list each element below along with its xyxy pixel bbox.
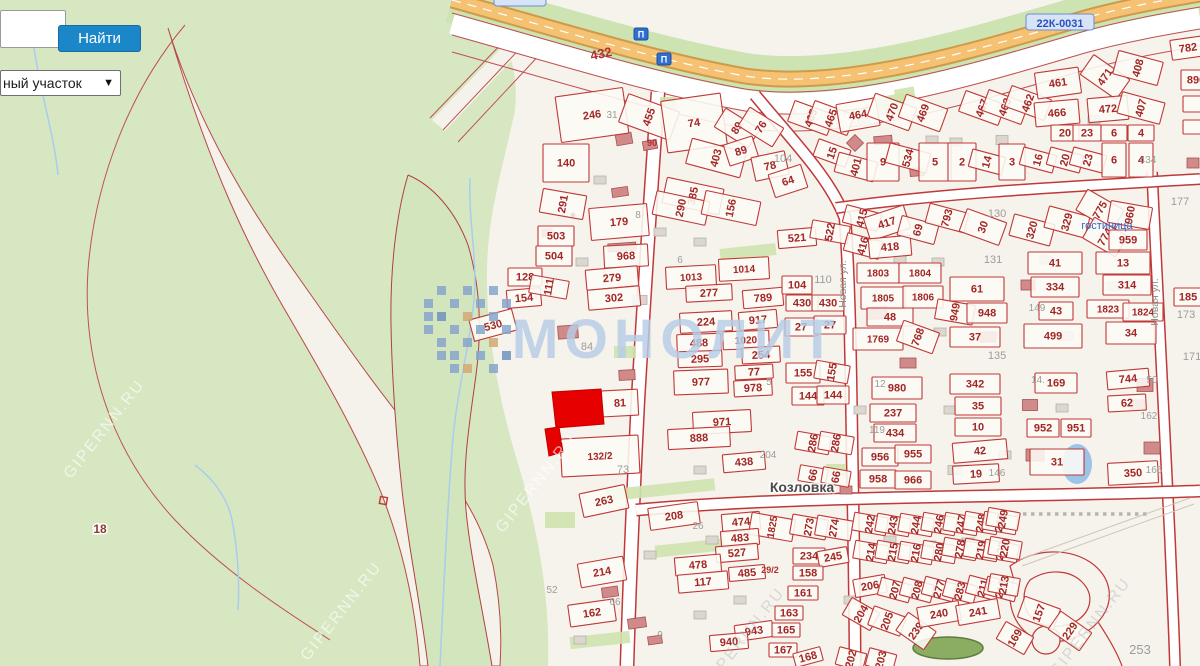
watermark-logo-square (489, 338, 498, 347)
map-label: 149 (1029, 303, 1046, 314)
parcel-number: 334 (1046, 282, 1065, 294)
parcel-number: 31 (1051, 457, 1063, 469)
find-button[interactable]: Найти (58, 25, 141, 52)
map-label: 8 (635, 210, 641, 221)
parcel-number: 782 (1178, 41, 1198, 55)
selected-parcel-shape[interactable] (552, 389, 604, 428)
street-name-label: Новая ул. (1149, 278, 1161, 325)
parcel[interactable]: 1803 (857, 263, 899, 283)
outbuilding (654, 228, 666, 236)
watermark-logo-square (450, 351, 459, 360)
parcel-number: 959 (1119, 235, 1137, 247)
parcel-number: 890 (1187, 75, 1200, 87)
parcel-number: 478 (688, 559, 707, 573)
parcel[interactable]: 958 (860, 470, 896, 488)
parcel[interactable]: 418 (868, 235, 912, 259)
parcel-number: 10 (972, 422, 984, 434)
parcel-number: 302 (604, 292, 623, 306)
parcel[interactable]: 956 (862, 448, 898, 466)
watermark-logo-square (450, 364, 459, 373)
parcel-number: 62 (1121, 397, 1134, 410)
parcel-number: 1013 (680, 272, 703, 284)
parcel[interactable]: 744 (1106, 368, 1149, 390)
parcel[interactable]: 1014 (718, 257, 769, 282)
parcel[interactable] (1183, 120, 1200, 134)
parcel[interactable]: 104 (782, 276, 812, 294)
parcel-number: 483 (730, 532, 749, 546)
parcel[interactable]: 948 (967, 303, 1007, 323)
map-label: 18 (93, 522, 107, 536)
parcel-number: 279 (602, 272, 621, 286)
parcel[interactable]: 527 (715, 543, 758, 563)
watermark-logo-square (437, 286, 446, 295)
map-label: 204 (760, 450, 777, 461)
parcel-number: 167 (774, 645, 792, 657)
road-label-clipped (494, 0, 546, 6)
parcel[interactable]: 504 (536, 246, 572, 266)
watermark-logo-square (476, 299, 485, 308)
svg-text:П: П (638, 30, 644, 40)
parcel-number: 154 (514, 292, 534, 306)
parcel-number: 43 (1050, 306, 1062, 318)
parcel-number: 956 (871, 452, 889, 464)
parcel-number: 4 (1138, 128, 1145, 140)
parcel-number: 1806 (912, 293, 935, 304)
watermark-logo-square (450, 325, 459, 334)
parcel[interactable]: 461 (1034, 67, 1081, 99)
parcel[interactable]: 499 (1024, 324, 1082, 348)
parcel-number: 3 (1009, 157, 1015, 169)
parcel[interactable]: 955 (895, 445, 931, 463)
outbuilding (734, 596, 746, 604)
parcel[interactable]: 35 (955, 397, 1001, 415)
parcel-number: 527 (727, 547, 746, 561)
parcel-number: 19 (970, 468, 983, 481)
parcel[interactable]: 1769 (853, 328, 903, 350)
parcel-number: 521 (787, 232, 806, 246)
map-label: 104 (774, 153, 792, 165)
parcel-number: 504 (545, 251, 564, 263)
watermark-logo-square (450, 299, 459, 308)
parcel[interactable]: 237 (870, 404, 916, 422)
outbuilding (1056, 404, 1068, 412)
parcel-number: 1014 (733, 264, 756, 276)
map-label: 50 (1146, 375, 1158, 386)
parcel[interactable]: 158 (793, 566, 823, 580)
parcel[interactable]: 968 (603, 244, 648, 268)
parcel[interactable]: 466 (1034, 99, 1080, 127)
map-label: 52 (546, 585, 558, 596)
parcel-number: 314 (1118, 280, 1137, 292)
map-label: 14. (1031, 375, 1045, 386)
map-label: 434 (1140, 155, 1157, 166)
watermark-logo-square (463, 286, 472, 295)
outbuilding (706, 536, 718, 544)
parcel-number: 466 (1047, 107, 1066, 121)
watermark-logo-square (463, 364, 472, 373)
parcel-number: 144 (799, 391, 818, 403)
parcel-number: 185 (1179, 292, 1197, 304)
watermark-logo-square (476, 325, 485, 334)
parcel-number: 13 (1117, 258, 1129, 270)
parcel-number: 246 (582, 108, 602, 122)
parcel-number: 966 (904, 475, 922, 487)
parcel[interactable]: 1805 (861, 287, 905, 309)
parcel[interactable]: 61 (950, 277, 1004, 301)
parcel-number: 485 (737, 567, 756, 581)
parcel-number: 980 (888, 383, 906, 395)
parcel-number: 61 (971, 284, 983, 296)
watermark-logo-square (424, 325, 433, 334)
parcel-number: 474 (731, 516, 751, 530)
parcel-number: 418 (880, 241, 899, 255)
outbuilding (854, 406, 866, 414)
parcel[interactable]: 31 (1030, 449, 1084, 475)
bus-stop-icon[interactable]: П (657, 53, 671, 65)
parcel[interactable]: 277 (686, 284, 733, 302)
watermark-logo-square (502, 325, 511, 334)
parcel-number: 277 (700, 287, 719, 300)
watermark-logo-square (424, 312, 433, 321)
map-label: 12 (874, 379, 886, 390)
parcel[interactable]: 959 (1109, 230, 1147, 250)
parcel[interactable]: 165 (772, 623, 800, 637)
parcel[interactable]: 37 (950, 327, 1000, 347)
parcel-number: 888 (690, 432, 709, 445)
parcel[interactable]: 6 (1102, 143, 1126, 177)
outbuilding (694, 238, 706, 246)
parcel-number: 2 (959, 157, 965, 169)
parcel-number: 41 (1049, 258, 1061, 270)
outbuilding (694, 611, 706, 619)
parcel[interactable]: 890 (1181, 70, 1200, 90)
parcel[interactable]: 23 (1073, 125, 1101, 141)
parcel[interactable]: 140 (543, 144, 589, 182)
map-label: 253 (1129, 642, 1151, 657)
outbuilding (694, 466, 706, 474)
parcel[interactable]: 1804 (899, 263, 941, 283)
parcel[interactable]: 13 (1096, 252, 1150, 274)
watermark-logo-square (502, 299, 511, 308)
parcel[interactable]: 951 (1061, 419, 1091, 437)
map-label: 146 (989, 468, 1006, 479)
watermark-text: МОНОЛИТ (512, 307, 841, 370)
parcel[interactable]: 782 (1170, 36, 1200, 61)
outbuilding (576, 258, 588, 266)
outbuilding (996, 136, 1008, 145)
building (611, 186, 628, 197)
svg-text:22К-0031: 22К-0031 (1036, 18, 1083, 30)
map-label: 119 (869, 425, 885, 436)
building (627, 617, 646, 629)
parcel-number: 6 (1111, 128, 1117, 140)
parcel-number: 104 (788, 280, 807, 292)
parcel[interactable]: 485 (728, 564, 765, 581)
parcel-number: 208 (664, 509, 684, 523)
parcel-number: 161 (794, 588, 812, 600)
parcel[interactable]: 10 (955, 418, 1001, 436)
chevron-down-icon: ▼ (103, 77, 114, 89)
parcel[interactable]: 42 (952, 439, 1008, 464)
parcel[interactable]: 966 (895, 471, 931, 489)
parcel[interactable]: 888 (668, 426, 731, 449)
object-type-dropdown[interactable]: ный участок ▼ (0, 70, 121, 96)
road-label: 22К-0031 (1026, 14, 1094, 30)
parcel-number: 81 (614, 397, 627, 410)
watermark-logo-square (437, 312, 446, 321)
watermark-logo-square (463, 338, 472, 347)
parcel-number: 179 (609, 216, 628, 230)
outbuilding (594, 176, 606, 184)
parcel-number: 169 (1047, 378, 1065, 390)
map-label: 171 (1183, 351, 1200, 363)
map-label: 66 (609, 597, 621, 608)
bus-stop-icon[interactable]: П (634, 28, 648, 40)
parcel-number: 1803 (867, 269, 890, 280)
parcel-number: 6 (1111, 155, 1117, 167)
building (1144, 442, 1160, 454)
map-label: 90 (647, 138, 657, 148)
watermark-logo-square (437, 338, 446, 347)
parcel[interactable]: 41 (1028, 252, 1082, 274)
parcel-number: 144 (824, 390, 843, 402)
map-label: 9 (657, 630, 663, 641)
map-label: 162 (1141, 411, 1158, 422)
search-input[interactable] (0, 10, 66, 48)
parcel[interactable]: 342 (950, 374, 1000, 394)
green-patch (545, 512, 575, 528)
parcel-number: 23 (1081, 128, 1093, 140)
parcel-number: 499 (1044, 331, 1062, 343)
parcel[interactable]: 503 (538, 226, 574, 246)
parcel[interactable]: 163 (775, 606, 803, 620)
parcel[interactable]: 314 (1103, 275, 1151, 295)
map-label: 73 (617, 464, 629, 476)
poi-label: гостиница (1081, 220, 1133, 232)
parcel-number: 237 (884, 408, 902, 420)
parcel-number: 461 (1048, 76, 1068, 90)
map-label: 5 (766, 377, 772, 388)
watermark-logo-square (463, 312, 472, 321)
map-label: 31 (606, 110, 618, 121)
parcel-number: 955 (904, 449, 922, 461)
parcel-number: 952 (1034, 423, 1052, 435)
parcel-number: 977 (692, 376, 711, 389)
parcel-number: 968 (617, 250, 636, 263)
map-label: 135 (988, 350, 1006, 362)
parcel[interactable]: 5 (919, 143, 951, 181)
map-label: 131 (984, 254, 1002, 266)
watermark-logo-square (424, 299, 433, 308)
parcel-number: 744 (1118, 373, 1138, 387)
watermark-logo-square (489, 312, 498, 321)
parcel[interactable] (1183, 96, 1200, 112)
street-name-label: Новая ул. (837, 260, 849, 307)
parcel-number: 1804 (909, 269, 932, 280)
parcel-number: 42 (973, 445, 986, 458)
watermark-logo-square (489, 364, 498, 373)
parcel-number: 5 (932, 157, 938, 169)
map-label: 29/2 (761, 565, 779, 575)
parcel-number: 472 (1098, 103, 1117, 117)
parcel-number: 140 (557, 158, 575, 170)
parcel-number: 34 (1125, 328, 1138, 340)
parcel-number: 951 (1067, 423, 1085, 435)
map-label: 130 (988, 208, 1006, 220)
parcel-number: 978 (744, 382, 763, 395)
map-label: 177 (1171, 196, 1189, 208)
parcel[interactable]: 977 (674, 369, 729, 395)
parcel[interactable]: 952 (1027, 419, 1059, 437)
map-label: 165 (1146, 465, 1163, 476)
map-label: 26 (692, 521, 704, 532)
cadastral-map[interactable]: 2464557414040389768978642911793852901565… (0, 0, 1200, 666)
svg-text:П: П (661, 55, 667, 65)
parcel[interactable]: 144 (817, 386, 849, 404)
watermark-logo-square (502, 351, 511, 360)
parcel-number: 234 (800, 551, 819, 563)
parcel-number: 958 (869, 474, 887, 486)
parcel-number: 1769 (867, 335, 890, 346)
parcel[interactable]: 334 (1031, 277, 1079, 297)
parcel-number: 1823 (1097, 305, 1120, 316)
building (900, 358, 916, 368)
outbuilding (574, 636, 586, 644)
parcel-number: 503 (547, 231, 565, 243)
parcel[interactable]: 81 (601, 389, 638, 417)
map-label: 173 (1177, 309, 1195, 321)
place-label: Козловка (770, 479, 835, 495)
parcel[interactable]: 117 (677, 571, 728, 593)
parcel-number: 162 (582, 606, 602, 620)
parcel-number: 37 (969, 332, 981, 344)
parcel-number: 350 (1124, 467, 1143, 480)
parcel-number: 158 (799, 568, 817, 580)
outbuilding (644, 551, 656, 559)
parcel-number: 132/2 (587, 451, 613, 463)
parcel-number: 342 (966, 379, 984, 391)
parcel-number: 438 (734, 456, 753, 470)
map-label: 6 (677, 255, 683, 266)
parcel-number: 20 (1059, 128, 1071, 140)
watermark-logo-square (489, 286, 498, 295)
parcel-number: 117 (694, 576, 713, 590)
parcel[interactable]: 4 (1128, 125, 1154, 141)
parcel[interactable]: 246 (555, 87, 629, 142)
parcel-number: 163 (780, 608, 798, 620)
parcel[interactable]: 6 (1101, 125, 1127, 141)
parcel-number: 48 (884, 312, 896, 324)
building (619, 370, 636, 381)
parcel[interactable]: 789 (742, 287, 783, 308)
watermark-logo-square (476, 351, 485, 360)
building (1023, 400, 1038, 411)
parcel-number: 165 (777, 625, 795, 637)
parcel[interactable]: 62 (1108, 394, 1147, 412)
map-label: 110 (814, 274, 832, 286)
parcel-number: 789 (753, 292, 772, 306)
parcel-number: 1805 (872, 294, 895, 305)
map-viewport[interactable]: 2464557414040389768978642911793852901565… (0, 0, 1200, 666)
watermark-logo-square (437, 351, 446, 360)
parcel[interactable]: 185 (1174, 288, 1200, 306)
dropdown-value: ный участок (3, 75, 82, 91)
parcel-number: 434 (886, 428, 905, 440)
outbuilding (944, 406, 956, 414)
parcel[interactable]: 161 (788, 586, 818, 600)
parcel-number: 948 (978, 308, 996, 320)
building (1187, 158, 1199, 168)
parcel-number: 35 (972, 401, 984, 413)
